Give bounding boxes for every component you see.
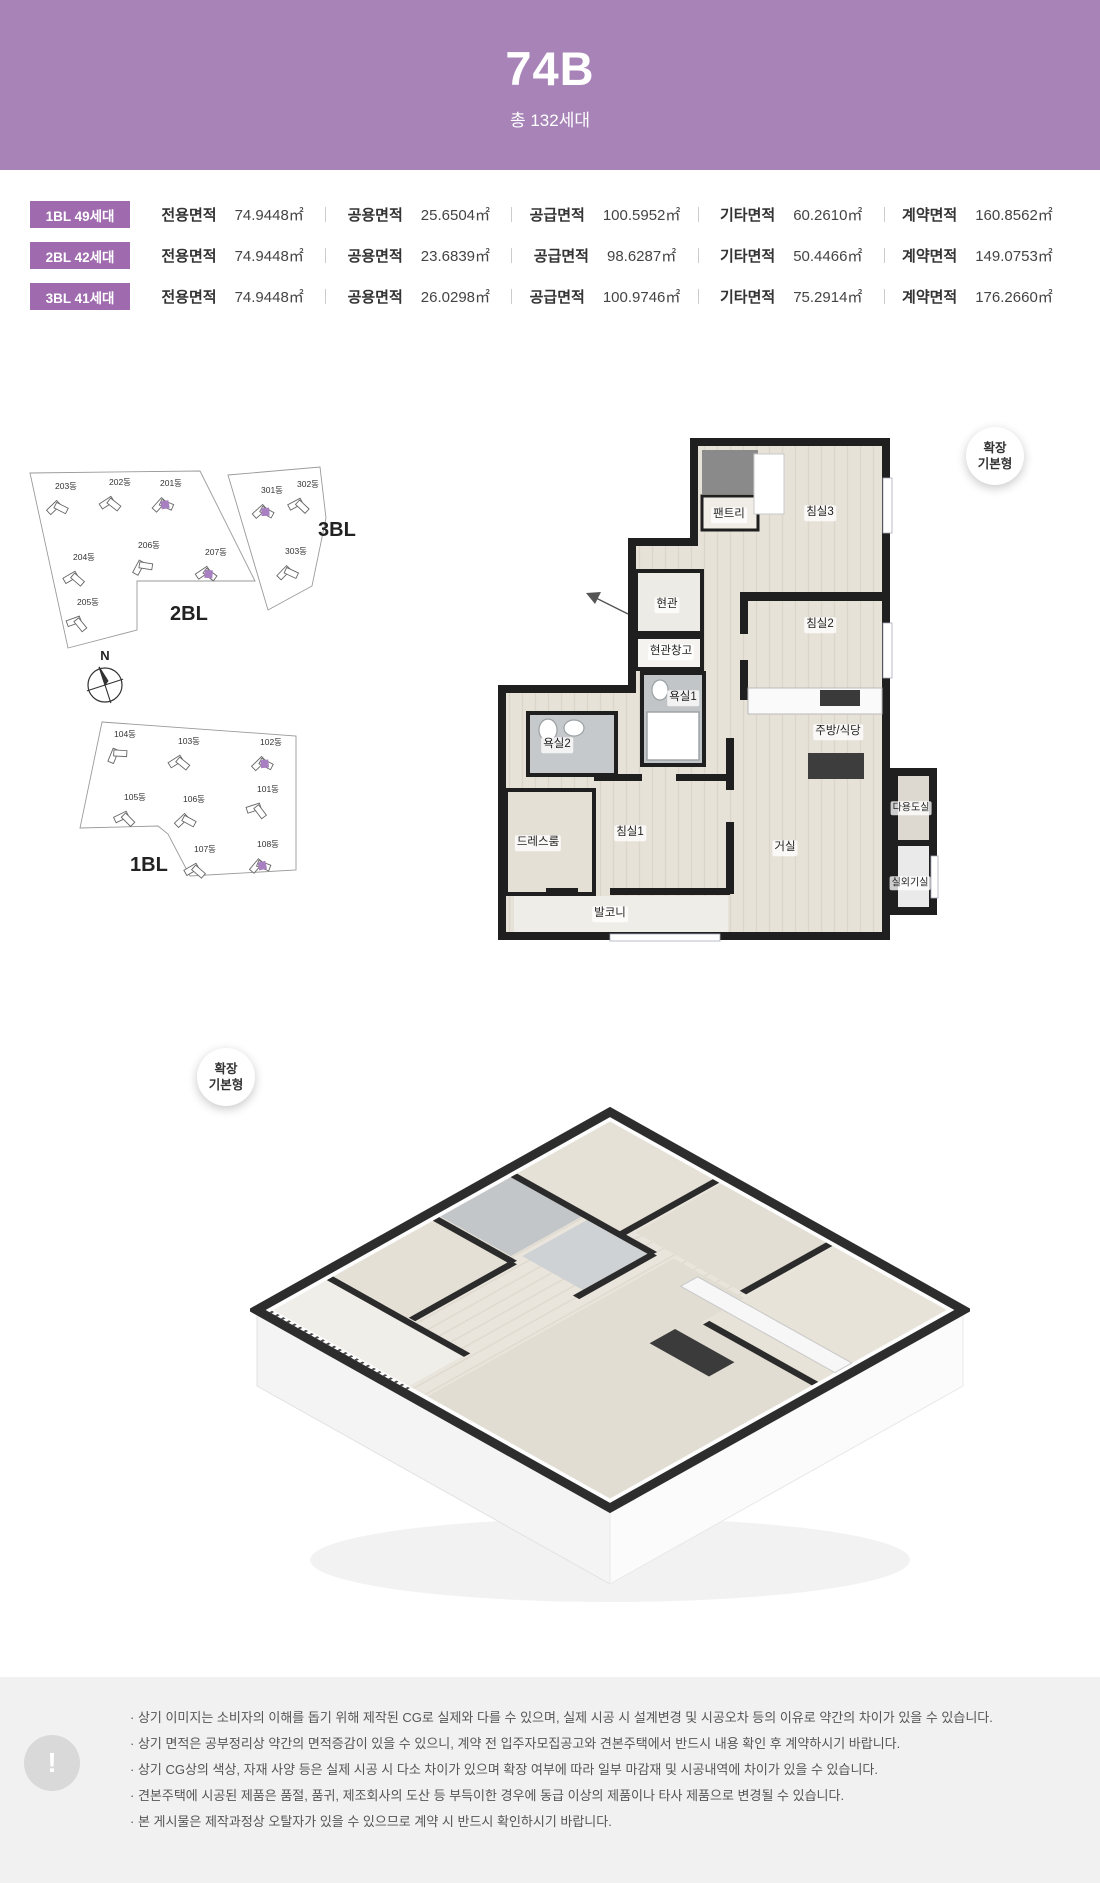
- room-label-bedroom2: 침실2: [804, 617, 836, 633]
- building-label: 106동: [183, 794, 205, 804]
- area-cell: 공급면적100.5952㎡: [512, 204, 697, 225]
- block-label-2bl: 2BL: [170, 603, 208, 625]
- table-row: 3BL 41세대 전용면적74.9448㎡ 공용면적26.0298㎡ 공급면적1…: [30, 283, 1070, 310]
- table-row: 1BL 49세대 전용면적74.9448㎡ 공용면적25.6504㎡ 공급면적1…: [30, 201, 1070, 228]
- area-value: 50.4466㎡: [793, 245, 862, 266]
- kitchen-counter: [748, 688, 882, 714]
- area-cell: 기타면적60.2610㎡: [699, 204, 884, 225]
- room-label-outdoor-unit: 실외기실: [890, 876, 931, 890]
- room-label-balcony: 발코니: [592, 906, 628, 922]
- building-label: 105동: [124, 792, 146, 802]
- building-label: 101동: [257, 784, 279, 794]
- building-label: 202동: [109, 477, 131, 487]
- room-label-dressroom: 드레스룸: [515, 835, 561, 851]
- kitchen-island: [808, 753, 864, 779]
- building-label: 108동: [257, 839, 279, 849]
- building-label: 104동: [114, 729, 136, 739]
- entry-arrow: [586, 592, 628, 614]
- area-cell: 계약면적176.2660㎡: [885, 286, 1070, 307]
- building-label: 102동: [260, 737, 282, 747]
- total-units-subtitle: 총 132세대: [510, 106, 590, 131]
- building-labels: 203동 202동 201동 204동 206동 207동 205동 301동 …: [55, 477, 319, 854]
- area-label: 공급면적: [530, 204, 585, 225]
- room-label-utility: 다용도실: [891, 801, 932, 815]
- area-cell: 계약면적160.8562㎡: [885, 204, 1070, 225]
- area-cell: 전용면적74.9448㎡: [140, 204, 325, 225]
- area-value: 26.0298㎡: [421, 286, 490, 307]
- area-cell: 기타면적50.4466㎡: [699, 245, 884, 266]
- room-label-entrance-storage: 현관창고: [648, 644, 694, 660]
- row-cells: 전용면적74.9448㎡ 공용면적25.6504㎡ 공급면적100.5952㎡ …: [140, 204, 1070, 225]
- core-shaft: [702, 450, 758, 494]
- room-label-entrance: 현관: [654, 597, 679, 613]
- block-badge: 1BL 49세대: [30, 201, 130, 228]
- area-label: 전용면적: [161, 286, 216, 307]
- area-value: 100.5952㎡: [603, 204, 681, 225]
- room-label-living: 거실: [772, 840, 797, 856]
- area-value: 25.6504㎡: [421, 204, 490, 225]
- building-label: 107동: [194, 844, 216, 854]
- row-cells: 전용면적74.9448㎡ 공용면적23.6839㎡ 공급면적98.6287㎡ 기…: [140, 245, 1070, 266]
- area-label: 공용면적: [348, 286, 403, 307]
- floor-plan-3d-render: [250, 1000, 970, 1690]
- area-spec-table: 1BL 49세대 전용면적74.9448㎡ 공용면적25.6504㎡ 공급면적1…: [30, 201, 1070, 324]
- disclaimer-line: · 견본주택에 시공된 제품은 품절, 품귀, 제조회사의 도산 등 부득이한 …: [130, 1783, 1070, 1809]
- building-label: 207동: [205, 547, 227, 557]
- disclaimer-line: · 상기 CG상의 색상, 자재 사양 등은 실제 시공 시 다소 차이가 있으…: [130, 1757, 1070, 1783]
- site-plan-diagram: 203동 202동 201동 204동 206동 207동 205동 301동 …: [20, 458, 360, 888]
- block-badge: 3BL 41세대: [30, 283, 130, 310]
- area-value: 160.8562㎡: [975, 204, 1053, 225]
- building-label: 201동: [160, 478, 182, 488]
- building-label: 203동: [55, 481, 77, 491]
- closet: [754, 454, 784, 514]
- building-label: 205동: [77, 597, 99, 607]
- expansion-type-badge-2d: 확장 기본형: [966, 427, 1024, 485]
- disclaimer-notes: · 상기 이미지는 소비자의 이해를 돕기 위해 제작된 CG로 실제와 다를 …: [130, 1705, 1070, 1835]
- expansion-type-badge-3d: 확장 기본형: [197, 1048, 255, 1106]
- area-label: 공급면적: [534, 245, 589, 266]
- area-value: 74.9448㎡: [235, 286, 304, 307]
- building-label: 303동: [285, 546, 307, 556]
- area-label: 기타면적: [720, 204, 775, 225]
- area-value: 100.9746㎡: [603, 286, 681, 307]
- block-label-3bl: 3BL: [318, 519, 356, 541]
- area-label: 공급면적: [530, 286, 585, 307]
- area-label: 공용면적: [348, 245, 403, 266]
- exclamation-icon: !: [24, 1735, 80, 1791]
- area-value: 149.0753㎡: [975, 245, 1053, 266]
- disclaimer-line: · 상기 면적은 공부정리상 약간의 면적증감이 있을 수 있으니, 계약 전 …: [130, 1731, 1070, 1757]
- area-label: 전용면적: [161, 204, 216, 225]
- header-banner: 74B 총 132세대: [0, 0, 1100, 170]
- room-label-bathroom1: 욕실1: [667, 690, 699, 706]
- area-cell: 공용면적26.0298㎡: [326, 286, 511, 307]
- page-title: 74B: [505, 45, 594, 92]
- building-label: 301동: [261, 485, 283, 495]
- area-cell: 기타면적75.2914㎡: [699, 286, 884, 307]
- disclaimer-line: · 본 게시물은 제작과정상 오탈자가 있을 수 있으므로 계약 시 반드시 확…: [130, 1809, 1070, 1835]
- building-label: 206동: [138, 540, 160, 550]
- compass-n-label: N: [100, 648, 109, 663]
- area-value: 75.2914㎡: [793, 286, 862, 307]
- block-badge: 2BL 42세대: [30, 242, 130, 269]
- unit-74b-page: 74B 총 132세대 1BL 49세대 전용면적74.9448㎡ 공용면적25…: [0, 0, 1100, 1883]
- area-value: 176.2660㎡: [975, 286, 1053, 307]
- area-cell: 공급면적100.9746㎡: [512, 286, 697, 307]
- area-cell: 계약면적149.0753㎡: [885, 245, 1070, 266]
- area-value: 98.6287㎡: [607, 245, 676, 266]
- disclaimer-footer: ! · 상기 이미지는 소비자의 이해를 돕기 위해 제작된 CG로 실제와 다…: [0, 1677, 1100, 1883]
- area-value: 74.9448㎡: [235, 204, 304, 225]
- area-label: 기타면적: [720, 286, 775, 307]
- area-label: 기타면적: [720, 245, 775, 266]
- area-value: 23.6839㎡: [421, 245, 490, 266]
- building-label: 204동: [73, 552, 95, 562]
- area-cell: 공급면적98.6287㎡: [512, 245, 697, 266]
- area-cell: 전용면적74.9448㎡: [140, 286, 325, 307]
- disclaimer-line: · 상기 이미지는 소비자의 이해를 돕기 위해 제작된 CG로 실제와 다를 …: [130, 1705, 1070, 1731]
- row-cells: 전용면적74.9448㎡ 공용면적26.0298㎡ 공급면적100.9746㎡ …: [140, 286, 1070, 307]
- site-boundary-2bl: [30, 471, 255, 648]
- table-row: 2BL 42세대 전용면적74.9448㎡ 공용면적23.6839㎡ 공급면적9…: [30, 242, 1070, 269]
- badge-line1: 확장: [214, 1061, 237, 1077]
- building-label: 302동: [297, 479, 319, 489]
- cooktop: [820, 690, 860, 706]
- bathtub: [647, 712, 699, 760]
- badge-line2: 기본형: [209, 1077, 244, 1093]
- area-label: 전용면적: [161, 245, 216, 266]
- area-cell: 공용면적23.6839㎡: [326, 245, 511, 266]
- room-label-bedroom3: 침실3: [804, 505, 836, 521]
- badge-line1: 확장: [983, 440, 1006, 456]
- block-label-1bl: 1BL: [130, 854, 168, 876]
- area-label: 계약면적: [902, 286, 957, 307]
- area-cell: 전용면적74.9448㎡: [140, 245, 325, 266]
- room-label-bathroom2: 욕실2: [541, 737, 573, 753]
- area-cell: 공용면적25.6504㎡: [326, 204, 511, 225]
- room-label-kitchen-dining: 주방/식당: [813, 724, 863, 740]
- area-label: 계약면적: [902, 204, 957, 225]
- room-label-bedroom1: 침실1: [614, 825, 646, 841]
- badge-line2: 기본형: [978, 456, 1013, 472]
- area-value: 74.9448㎡: [235, 245, 304, 266]
- area-label: 공용면적: [348, 204, 403, 225]
- building-label: 103동: [178, 736, 200, 746]
- area-label: 계약면적: [902, 245, 957, 266]
- compass-icon: N: [81, 648, 129, 709]
- area-value: 60.2610㎡: [793, 204, 862, 225]
- room-label-pantry: 팬트리: [711, 507, 747, 523]
